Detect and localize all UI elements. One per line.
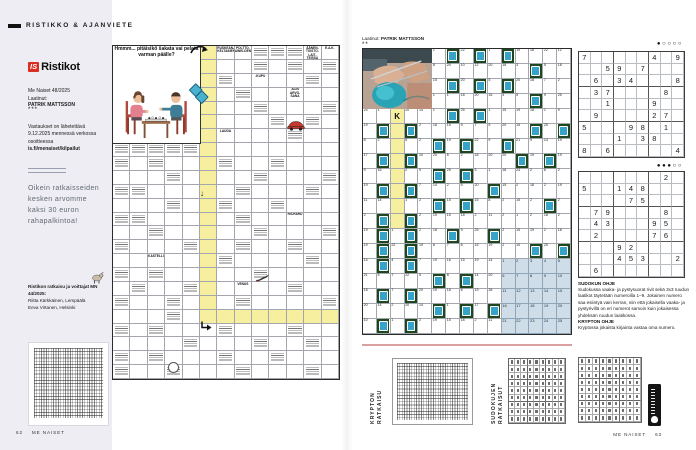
sudoku-cell bbox=[591, 172, 603, 184]
krypto-reference-cell: 15 bbox=[557, 289, 571, 304]
krypto-block-icon bbox=[502, 79, 514, 92]
crossword-cell bbox=[217, 102, 234, 116]
krypto-cell: 20 bbox=[432, 154, 446, 169]
crossword-cell bbox=[269, 143, 286, 157]
crossword-clue-cell bbox=[235, 240, 252, 254]
crossword-cell bbox=[287, 157, 304, 171]
krypto-cell-number: 5 bbox=[419, 274, 421, 278]
krypto-cell: 20 bbox=[474, 184, 488, 199]
krypto-reference-number: 5 bbox=[558, 259, 560, 263]
sudoku-cell: 5 bbox=[661, 219, 673, 231]
solution-grid-cell bbox=[593, 386, 600, 393]
sudoku-cell bbox=[591, 122, 603, 134]
krypto-cell: 2 bbox=[418, 214, 432, 229]
crossword-clue-cell bbox=[130, 213, 147, 227]
krypto-block-cell bbox=[377, 259, 391, 274]
krypto-cell: 14 bbox=[474, 274, 488, 289]
solution-grid-cell bbox=[600, 379, 607, 386]
crossword-cell bbox=[148, 365, 165, 379]
sudoku-cell bbox=[661, 254, 673, 266]
crossword-cell bbox=[322, 157, 339, 171]
krypto-block-cell bbox=[557, 244, 571, 259]
issue-line: Me Naiset 48/2025 bbox=[28, 88, 106, 95]
krypto-cell-number: 19 bbox=[433, 214, 437, 218]
krypto-block-icon bbox=[405, 214, 417, 227]
krypto-cell: 19 bbox=[432, 319, 446, 334]
krypto-block-cell bbox=[502, 139, 516, 154]
krypto-cell-number: 2 bbox=[391, 304, 393, 308]
sudoku1-grid: 7495976348378199275981138864 bbox=[578, 51, 685, 158]
sudoku-cell bbox=[661, 195, 673, 207]
krypto-cell-number: 14 bbox=[544, 139, 548, 143]
crossword-clue-text: LAUDA bbox=[217, 129, 233, 142]
solution-grid-cell bbox=[593, 401, 600, 408]
krypto-cell: 17 bbox=[363, 154, 377, 169]
krypto-cell-number: 15 bbox=[433, 79, 437, 83]
sudoku-cell: 6 bbox=[602, 145, 614, 157]
krypto-highlight-cell bbox=[391, 139, 405, 154]
crossword-cell bbox=[200, 199, 217, 213]
krypto-cell-number: 18 bbox=[447, 289, 451, 293]
solution-grid-cell bbox=[579, 401, 586, 408]
krypto-cell: 2 bbox=[557, 79, 571, 94]
krypto-cell-number: 22 bbox=[405, 274, 409, 278]
crossword-clue-microtext bbox=[306, 367, 319, 376]
krypto-reference-cell: 4 bbox=[543, 259, 557, 274]
krypto-cell-number: 14 bbox=[377, 304, 381, 308]
crossword-cell bbox=[322, 129, 339, 143]
sidebar-divider bbox=[28, 168, 66, 173]
krypto-cell-number: 19 bbox=[447, 139, 451, 143]
krypto-cell-number: 9 bbox=[488, 139, 490, 143]
krypto-block-icon bbox=[433, 199, 445, 212]
crossword-cell bbox=[200, 102, 217, 116]
left-magazine-name: ME NAISET bbox=[32, 430, 65, 435]
krypto-block-icon bbox=[474, 79, 486, 92]
krypto-block-cell bbox=[377, 214, 391, 229]
crossword-clue-microtext bbox=[115, 242, 128, 251]
krypto-cell-number: 5 bbox=[488, 79, 490, 83]
krypto-cell: 20 bbox=[363, 304, 377, 319]
sudoku-cell bbox=[614, 219, 626, 231]
sudoku1-solution-grid bbox=[508, 358, 566, 424]
krypto-cell: 5 bbox=[405, 139, 419, 154]
crossword-cell bbox=[183, 171, 200, 185]
crossword-cell bbox=[269, 240, 286, 254]
sudoku-cell bbox=[661, 184, 673, 196]
krypto-cell-number: 18 bbox=[530, 184, 534, 188]
crossword-cell bbox=[252, 88, 269, 102]
krypto-cell-number: 18 bbox=[544, 214, 548, 218]
crossword-cell bbox=[235, 115, 252, 129]
solution-grid-cell bbox=[593, 379, 600, 386]
krypto-cell-number: 14 bbox=[419, 304, 423, 308]
crossword-clue-microtext bbox=[323, 228, 336, 237]
crossword-cell bbox=[183, 213, 200, 227]
sudoku-cell bbox=[649, 242, 661, 254]
krypto-block-icon bbox=[474, 49, 486, 62]
solution-grid-cell bbox=[600, 394, 607, 401]
krypto-cell-number: 25 bbox=[475, 229, 479, 233]
crossword-cell bbox=[217, 115, 234, 129]
krypto-cell-number: 7 bbox=[447, 244, 449, 248]
crossword-clue-cell bbox=[130, 282, 147, 296]
crossword-cell bbox=[269, 296, 286, 310]
solution-grid-cell bbox=[559, 387, 565, 394]
solution-grid-cell bbox=[586, 358, 593, 365]
sudoku-solutions-label-line2: RATKAISUT bbox=[498, 386, 504, 424]
krypto-cell: 15 bbox=[432, 79, 446, 94]
sudoku-cell bbox=[602, 122, 614, 134]
krypto-cell: 15 bbox=[488, 94, 502, 109]
crossword-clue-microtext bbox=[288, 48, 301, 57]
crossword-cell bbox=[200, 226, 217, 240]
crossword-cell bbox=[287, 185, 304, 199]
krypto-cell: 15 bbox=[474, 199, 488, 214]
krypto-cell: 5 bbox=[488, 79, 502, 94]
krypto-cell: 2 bbox=[502, 229, 516, 244]
krypto-reference-number: 24 bbox=[544, 319, 548, 323]
crossword-cell bbox=[287, 351, 304, 365]
crossword-clue-microtext bbox=[306, 187, 319, 196]
solution-grid-cell bbox=[634, 394, 641, 401]
krypto-block-cell bbox=[405, 289, 419, 304]
crossword-clue-microtext bbox=[132, 145, 145, 154]
krypto-cell: 25 bbox=[446, 169, 460, 184]
krypto-reference-cell: 5 bbox=[557, 259, 571, 274]
sudoku-cell: 6 bbox=[591, 75, 603, 87]
krypto-block-icon bbox=[405, 319, 417, 332]
sudoku-cell bbox=[626, 230, 638, 242]
krypto-cell-number: 20 bbox=[433, 154, 437, 158]
crossword-cell bbox=[235, 60, 252, 74]
krypto-cell: 18 bbox=[474, 154, 488, 169]
right-magazine-name: ME NAISET bbox=[613, 432, 646, 437]
krypto-block-cell bbox=[377, 319, 391, 334]
krypton-solution-box bbox=[392, 358, 473, 425]
crossword-clue-cell bbox=[269, 351, 286, 365]
sudoku-cell bbox=[649, 265, 661, 277]
krypto-cell-number: 19 bbox=[364, 244, 368, 248]
sudoku-cell: 4 bbox=[672, 145, 684, 157]
section-header: RISTIKKO & AJANVIETE bbox=[8, 22, 134, 29]
crossword-clue-cell bbox=[148, 157, 165, 171]
krypto-cell-number: 20 bbox=[405, 109, 409, 113]
crossword-clue-microtext bbox=[167, 312, 180, 321]
sudoku-cell bbox=[602, 75, 614, 87]
krypto-cell-number: 20 bbox=[419, 289, 423, 293]
krypto-block-cell bbox=[543, 154, 557, 169]
krypto-cell-number: 8 bbox=[433, 64, 435, 68]
solution-grid-cell bbox=[613, 386, 620, 393]
krypto-cell: 2 bbox=[460, 154, 474, 169]
crossword-cell bbox=[113, 199, 130, 213]
krypto-block-icon bbox=[377, 319, 389, 332]
krypto-cell: 20 bbox=[405, 304, 419, 319]
solution-grid-cell bbox=[600, 386, 607, 393]
krypto-cell-number: 17 bbox=[364, 154, 368, 158]
sudoku-cell bbox=[591, 242, 603, 254]
krypto-cell-number: 2 bbox=[544, 229, 546, 233]
crossword-cell bbox=[200, 157, 217, 171]
crossword-cell bbox=[113, 310, 130, 324]
sudoku-cell: 8 bbox=[661, 207, 673, 219]
krypto-cell: 2 bbox=[418, 229, 432, 244]
krypto-cell: 19 bbox=[557, 184, 571, 199]
krypto-cell: 5 bbox=[543, 64, 557, 79]
solution-grid-cell bbox=[586, 401, 593, 408]
krypto-cell: 20 bbox=[488, 154, 502, 169]
krypto-cell: 6 bbox=[543, 169, 557, 184]
krypto-block-cell bbox=[502, 49, 516, 64]
krypto-reference-cell: 3 bbox=[529, 259, 543, 274]
krypto-cell: 2 bbox=[418, 139, 432, 154]
crossword-clue-microtext bbox=[115, 270, 128, 279]
crossword-clue-cell bbox=[165, 143, 182, 157]
crossword-cell bbox=[252, 240, 269, 254]
krypto-reference-number: 9 bbox=[544, 274, 546, 278]
krypto-cell-number: 7 bbox=[475, 124, 477, 128]
solution-grid-cell bbox=[627, 372, 634, 379]
krypto-reference-number: 25 bbox=[558, 319, 562, 323]
krypto-cell-number: 9 bbox=[544, 94, 546, 98]
crossword-clue-cell bbox=[287, 60, 304, 74]
crossword-cell bbox=[217, 143, 234, 157]
solution-grid-cell bbox=[600, 358, 607, 365]
krypto-reference-cell: 2 bbox=[516, 259, 530, 274]
crossword-cell bbox=[113, 226, 130, 240]
sudoku-cell bbox=[626, 64, 638, 76]
solution-grid-cell bbox=[607, 408, 614, 415]
krypto-block-cell bbox=[516, 154, 530, 169]
krypto-cell-number: 15 bbox=[516, 199, 520, 203]
krypto-block-cell bbox=[529, 64, 543, 79]
sudoku-cell bbox=[579, 242, 591, 254]
crossword-clue-text: RICHARD bbox=[287, 213, 303, 226]
krypto-cell-number: 20 bbox=[488, 274, 492, 278]
krypto-cell: 21 bbox=[516, 139, 530, 154]
krypto-cell-number: 2 bbox=[558, 199, 560, 203]
krypto-cell-number: 14 bbox=[364, 259, 368, 263]
krypto-cell: 9 bbox=[460, 229, 474, 244]
krypto-cell-number: 11 bbox=[364, 199, 368, 203]
sudoku-cell bbox=[602, 195, 614, 207]
krypto-block-cell bbox=[377, 244, 391, 259]
krypto-cell: 18 bbox=[363, 289, 377, 304]
krypto-cell-number: 15 bbox=[475, 244, 479, 248]
krypto-block-icon bbox=[544, 154, 556, 167]
krypto-cell-number: 25 bbox=[558, 94, 562, 98]
sudoku-cell bbox=[614, 172, 626, 184]
crossword-cell bbox=[304, 129, 321, 143]
krypto-highlight-cell bbox=[391, 184, 405, 199]
crossword-cell bbox=[235, 157, 252, 171]
down-arrow-icon: ↓ bbox=[200, 190, 204, 198]
krypto-cell: 1 bbox=[516, 214, 530, 229]
crossword-clue-cell bbox=[113, 143, 130, 157]
crossword-clue-cell bbox=[183, 337, 200, 351]
crossword-cell bbox=[148, 213, 165, 227]
sudoku-cell: 6 bbox=[591, 265, 603, 277]
crossword-cell bbox=[200, 365, 217, 379]
crossword-cell bbox=[130, 351, 147, 365]
crossword-clue-cell bbox=[287, 240, 304, 254]
krypto-cell: 24 bbox=[516, 169, 530, 184]
krypto-cell: 6 bbox=[446, 154, 460, 169]
krypto-cell-number: 18 bbox=[530, 79, 534, 83]
crossword-cell bbox=[235, 310, 252, 324]
sudoku-cell bbox=[602, 110, 614, 122]
sudoku-cell bbox=[649, 122, 661, 134]
krypto-reference-cell: 14 bbox=[543, 289, 557, 304]
crossword-clue-microtext bbox=[323, 104, 336, 113]
krypto-cell: 21 bbox=[363, 274, 377, 289]
krypto-cell-number: 2 bbox=[419, 319, 421, 323]
krypto-block-icon bbox=[433, 274, 445, 287]
krypto-cell-number: 9 bbox=[461, 124, 463, 128]
sudoku-help-title: SUDOKUN OHJE bbox=[578, 281, 615, 286]
crossword-cell bbox=[269, 324, 286, 338]
sudoku-cell bbox=[591, 195, 603, 207]
krypto-cell: 5 bbox=[488, 124, 502, 139]
krypto-cell-number: 17 bbox=[475, 304, 479, 308]
crossword-clue-microtext bbox=[306, 256, 319, 265]
krypto-block-cell bbox=[488, 304, 502, 319]
crossword-cell bbox=[252, 185, 269, 199]
krypto-cell: 18 bbox=[432, 124, 446, 139]
krypto-cell: 7 bbox=[474, 124, 488, 139]
crossword-clue-cell bbox=[304, 74, 321, 88]
krypto-cell: 2 bbox=[391, 304, 405, 319]
krypto-cell: 15 bbox=[516, 199, 530, 214]
sudoku-cell: 7 bbox=[649, 230, 661, 242]
krypto-reference-number: 6 bbox=[502, 274, 504, 278]
crossword-clue-text: ALIN ARVO-SANA bbox=[287, 88, 303, 101]
krypto-cell: 24 bbox=[363, 109, 377, 124]
krypto-cell-number: 22 bbox=[475, 139, 479, 143]
crossword-cell bbox=[217, 213, 234, 227]
krypto-block-icon bbox=[516, 154, 528, 167]
crossword-cell bbox=[183, 254, 200, 268]
crossword-cell bbox=[165, 240, 182, 254]
krypto-cell: 20 bbox=[446, 64, 460, 79]
sudoku-cell: 9 bbox=[614, 242, 626, 254]
sudoku-cell: 9 bbox=[591, 110, 603, 122]
crossword-clue-microtext bbox=[306, 117, 319, 126]
solution-grid-cell bbox=[559, 373, 565, 380]
crossword-clue-microtext bbox=[149, 326, 162, 335]
krypto-cell: 15 bbox=[446, 319, 460, 334]
crossword-cell bbox=[252, 296, 269, 310]
krypto-cell: 2 bbox=[363, 214, 377, 229]
crossword-cell bbox=[165, 337, 182, 351]
krypto-cell-number: 15 bbox=[475, 199, 479, 203]
sudoku-cell: 5 bbox=[626, 254, 638, 266]
solution-grid-cell bbox=[627, 379, 634, 386]
krypto-cell: 10 bbox=[460, 64, 474, 79]
crossword-cell bbox=[322, 324, 339, 338]
krypto-cell: 9 bbox=[363, 169, 377, 184]
krypto-cell-number: 2 bbox=[530, 214, 532, 218]
sudoku-cell bbox=[649, 75, 661, 87]
crossword-clue-microtext bbox=[167, 201, 180, 210]
crossword-clue-microtext bbox=[115, 159, 128, 168]
krypto-cell: 14 bbox=[432, 184, 446, 199]
krypto-cell-number: 19 bbox=[516, 49, 520, 53]
krypto-reference-number: 16 bbox=[502, 304, 506, 308]
solution-grid-cell bbox=[607, 386, 614, 393]
goat-icon bbox=[90, 271, 104, 284]
sudoku-cell bbox=[626, 134, 638, 146]
crossword-clue-microtext bbox=[184, 242, 197, 251]
crossword-cell bbox=[165, 185, 182, 199]
sudoku-cell bbox=[579, 207, 591, 219]
sudoku-cell bbox=[672, 134, 684, 146]
crossword-clue-text: KASTELLI bbox=[148, 254, 164, 267]
krypto-block-icon bbox=[377, 124, 389, 137]
krypto-block-cell bbox=[377, 229, 391, 244]
solution-grid-cell bbox=[627, 394, 634, 401]
krypto-block-cell bbox=[405, 214, 419, 229]
krypton-solution-label-line2: RATKAISU bbox=[377, 390, 383, 424]
sudoku-cell bbox=[591, 52, 603, 64]
crossword-cell bbox=[200, 254, 217, 268]
krypto-block-cell bbox=[377, 124, 391, 139]
krypto-cell: 15 bbox=[446, 199, 460, 214]
crossword-clue-microtext bbox=[219, 353, 232, 362]
crossword-cell bbox=[235, 171, 252, 185]
crossword-cell bbox=[287, 102, 304, 116]
krypto-highlight-cell bbox=[391, 169, 405, 184]
sudoku-cell bbox=[591, 64, 603, 76]
crossword-cell bbox=[183, 324, 200, 338]
sudoku-cell bbox=[661, 99, 673, 111]
crossword-clue-cell bbox=[130, 143, 147, 157]
sudoku-cell bbox=[626, 207, 638, 219]
krypto-reference-cell: 18 bbox=[529, 304, 543, 319]
sudoku-cell bbox=[672, 265, 684, 277]
crossword-cell bbox=[252, 310, 269, 324]
crossword-clue-microtext bbox=[306, 339, 319, 348]
sudoku-cell: 8 bbox=[637, 122, 649, 134]
sudoku-solutions-label-line1: SUDOKUJEN bbox=[491, 383, 497, 424]
crossword-cell bbox=[200, 60, 217, 74]
krypto-reference-number: 12 bbox=[516, 289, 520, 293]
sudoku-cell bbox=[614, 110, 626, 122]
crossword-cell bbox=[322, 88, 339, 102]
krypto-cell: 1 bbox=[391, 229, 405, 244]
krypto-cell-number: 16 bbox=[447, 259, 451, 263]
krypto-block-cell bbox=[446, 109, 460, 124]
difficulty-stars: *** bbox=[28, 107, 38, 113]
krypto-cell: 14 bbox=[488, 259, 502, 274]
crossword-cell bbox=[235, 102, 252, 116]
sudoku-cell bbox=[579, 75, 591, 87]
solution-grid-cell bbox=[607, 358, 614, 365]
krypto-cell: 2 bbox=[446, 184, 460, 199]
solution-grid-cell bbox=[559, 380, 565, 387]
crossword-cell bbox=[130, 254, 147, 268]
sudoku-cell bbox=[672, 172, 684, 184]
crossword-cell bbox=[269, 102, 286, 116]
crossword-clue-microtext bbox=[323, 173, 336, 182]
sudoku-cell bbox=[602, 242, 614, 254]
krypto-cell-number: 1 bbox=[405, 199, 407, 203]
krypto-reference-number: 18 bbox=[530, 304, 534, 308]
krypto-cell: 10 bbox=[516, 244, 530, 259]
sudoku-cell bbox=[672, 230, 684, 242]
crossword-clue-cell bbox=[269, 46, 286, 60]
